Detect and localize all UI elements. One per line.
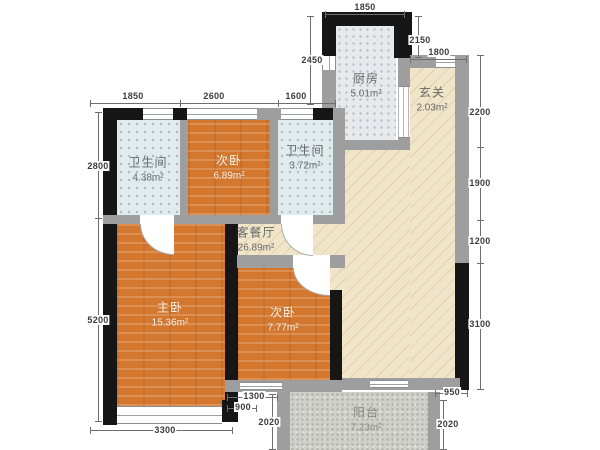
bath2-window — [281, 108, 313, 120]
dim-line-right — [480, 55, 481, 390]
balcony-door-window — [370, 380, 408, 388]
living-name: 客餐厅 — [236, 226, 275, 242]
dim-balcony-left: 2020 — [257, 417, 280, 427]
wall-kitchen-right-a — [398, 58, 410, 86]
living-area: 26.89m² — [236, 241, 275, 254]
floor-plan: 1850 2450 2150 1800 1850 2600 1600 2800 … — [0, 0, 600, 450]
dim-tick — [477, 147, 484, 148]
bed-mid-area: 7.77m² — [267, 321, 298, 334]
master-label: 主卧 15.36m² — [152, 301, 189, 330]
master-area: 15.36m² — [152, 316, 189, 329]
wall-bed-mid-right — [330, 290, 342, 382]
kitchen-label: 厨房 5.01m² — [350, 72, 381, 101]
master-name: 主卧 — [152, 301, 189, 317]
foyer-label: 玄关 2.03m² — [416, 86, 447, 115]
bath2-name: 卫生间 — [285, 144, 324, 160]
dim-right-4: 3100 — [468, 319, 491, 329]
kitchen-area: 5.01m² — [350, 87, 381, 100]
dim-900: 900 — [234, 402, 252, 412]
living-label: 客餐厅 26.89m² — [236, 226, 275, 255]
bath1-name: 卫生间 — [128, 156, 167, 172]
dim-tick — [95, 218, 102, 219]
bed-top-area: 6.89m² — [213, 169, 244, 182]
master-window — [117, 406, 222, 424]
dim-950: 950 — [443, 387, 461, 397]
wall-bed-top-right — [270, 108, 278, 215]
wall-bed-top-left — [180, 120, 188, 215]
wall-bath2-right — [333, 108, 345, 224]
bed-mid-door-opening — [293, 255, 330, 268]
wall-top-a — [103, 108, 143, 120]
wall-right-lower — [455, 263, 469, 390]
dim-kitchen-right: 2150 — [408, 35, 431, 45]
dim-line-left — [98, 112, 99, 422]
kitchen-name: 厨房 — [350, 72, 381, 88]
bed-mid-label: 次卧 7.77m² — [267, 306, 298, 335]
bath2-door-opening — [281, 215, 313, 224]
dim-tick — [278, 100, 279, 107]
bath1-label: 卫生间 4.38m² — [128, 156, 167, 185]
dim-right-3: 1200 — [468, 236, 491, 246]
dim-left-1: 2800 — [86, 161, 109, 171]
dim-foyer-top: 1800 — [427, 47, 450, 57]
foyer-area: 2.03m² — [416, 101, 447, 114]
foyer-floor — [410, 68, 455, 378]
wall-top-b — [173, 108, 187, 120]
dim-tick — [180, 100, 181, 107]
wall-top-d — [257, 108, 281, 120]
dim-right-2: 1900 — [468, 178, 491, 188]
dim-kitchen-top: 1850 — [353, 2, 376, 12]
dim-tick — [477, 263, 484, 264]
hall-floor2 — [330, 268, 345, 290]
dim-left-2: 5200 — [86, 315, 109, 325]
dim-line-kitchen-top — [325, 14, 405, 15]
dim-tick — [477, 220, 484, 221]
living-floor — [336, 150, 410, 378]
dim-row2-3: 1600 — [284, 91, 307, 101]
bed-top-name: 次卧 — [213, 154, 244, 170]
dim-master-bottom: 3300 — [153, 425, 176, 435]
bath2-label: 卫生间 3.72m² — [285, 144, 324, 173]
dim-1300: 1300 — [242, 391, 265, 401]
bed-mid-window — [240, 382, 282, 390]
wall-kitchen-left — [322, 26, 336, 56]
balcony-name: 阳台 — [350, 406, 381, 422]
dim-row2-2: 2600 — [202, 91, 225, 101]
dim-line-foyer-top — [410, 59, 467, 60]
bath1-area: 4.38m² — [128, 171, 167, 184]
dim-balcony-right: 2020 — [436, 419, 459, 429]
bed-top-window — [187, 108, 257, 120]
balcony-area: 7.23m² — [350, 421, 381, 434]
foyer-name: 玄关 — [416, 86, 447, 102]
dim-right-1: 2200 — [468, 107, 491, 117]
bath1-window — [143, 108, 173, 120]
wall-left-outer — [103, 108, 117, 425]
dim-line-row2 — [90, 103, 336, 104]
kitchen-sliding-door — [398, 86, 410, 138]
wall-kitchen-right-b — [398, 138, 410, 150]
bath2-area: 3.72m² — [285, 159, 324, 172]
bed-top-label: 次卧 6.89m² — [213, 154, 244, 183]
wall-right-upper — [455, 55, 469, 263]
dim-kitchen-left: 2450 — [300, 55, 323, 65]
balcony-label: 阳台 7.23m² — [350, 406, 381, 435]
kitchen-left-window — [322, 56, 336, 70]
bed-mid-name: 次卧 — [267, 306, 298, 322]
dim-row2-1: 1850 — [121, 91, 144, 101]
master-door-opening — [140, 215, 174, 224]
